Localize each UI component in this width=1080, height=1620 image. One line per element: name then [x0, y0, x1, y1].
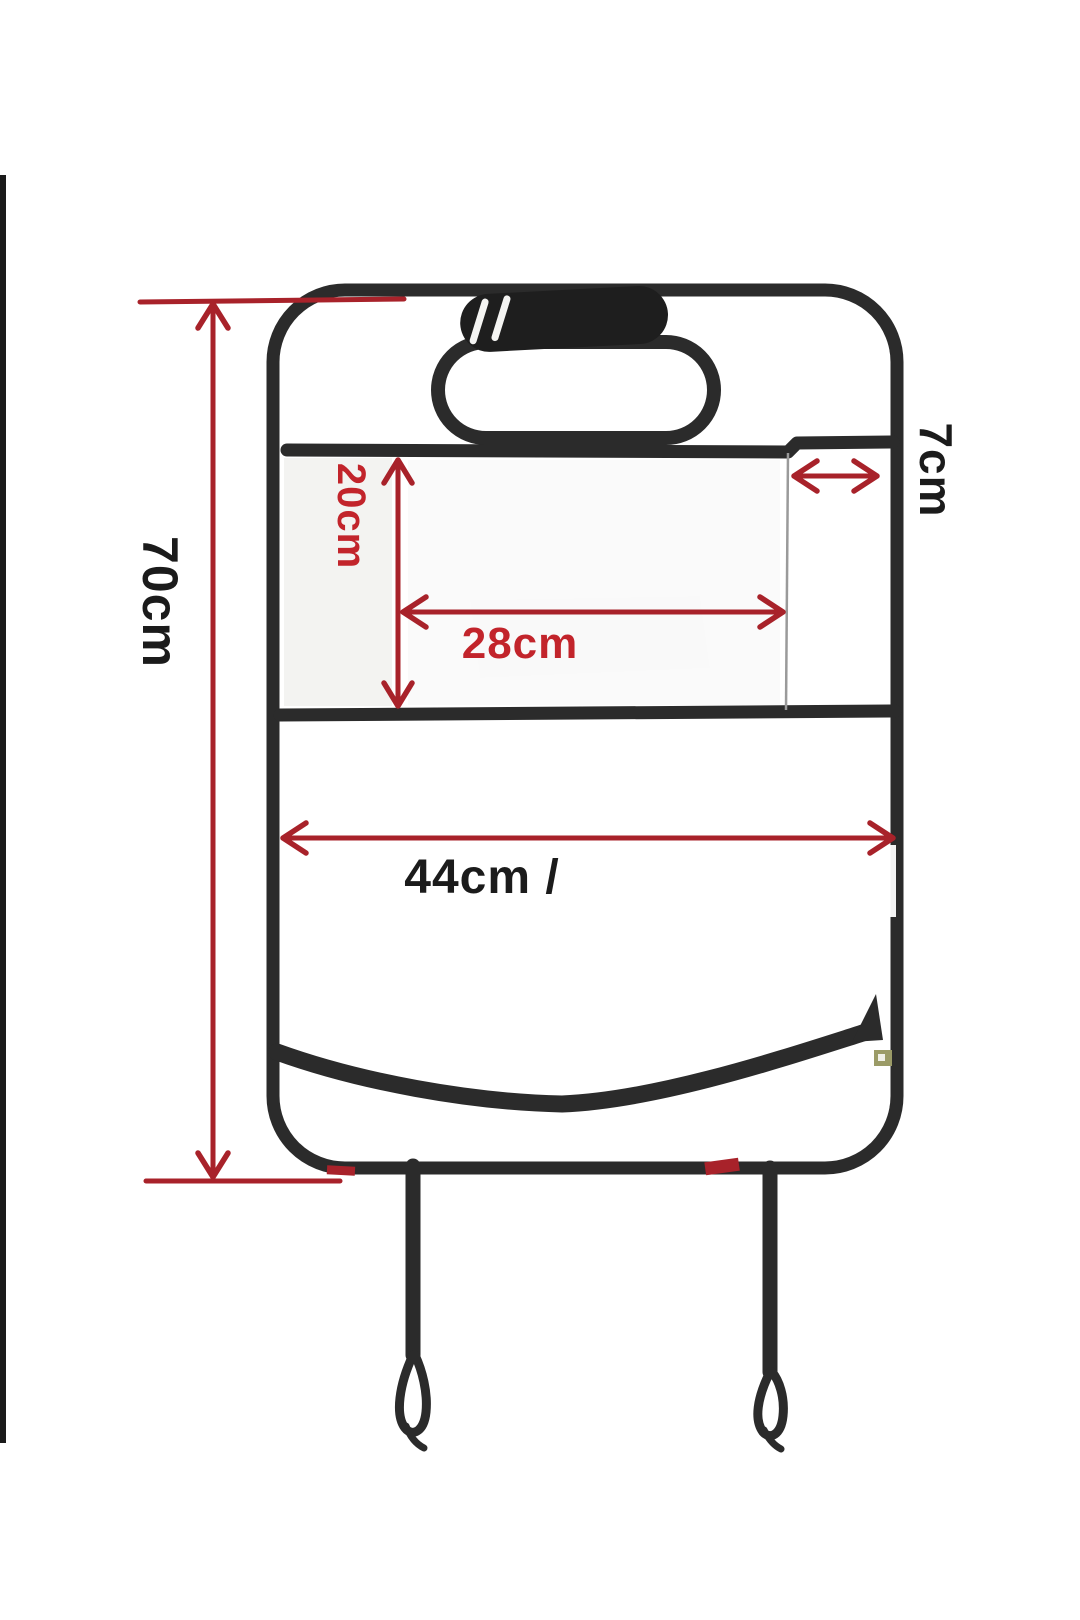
- headrest-strap: [459, 285, 670, 354]
- red-hem-mark-left: [327, 1165, 355, 1175]
- pocket-window: [408, 460, 780, 705]
- side-pocket-dimension-line: [794, 461, 877, 491]
- left-strap-loop: [399, 1355, 426, 1432]
- pocket-height-dimension-label: 20cm: [331, 463, 371, 569]
- width-dimension-label: 44cm /: [404, 854, 559, 902]
- zipper-tab-highlight: [878, 1054, 885, 1061]
- bottom-pocket-trim-tip: [852, 994, 883, 1042]
- pocket-seam-bottom: [280, 711, 895, 715]
- protector-outline: [273, 290, 897, 1168]
- headrest-opening: [438, 342, 714, 438]
- photo-edge-bar: [0, 175, 6, 1443]
- bottom-pocket-trim: [277, 1032, 866, 1104]
- product-photo: 70cm 20cm 28cm 7cm 44cm /: [0, 0, 1080, 1620]
- right-tie-strap: [758, 1168, 784, 1449]
- right-strap-loop: [758, 1372, 784, 1436]
- pocket-divider-seam: [786, 453, 788, 710]
- seat-protector: [273, 285, 897, 1449]
- pocket-width-dimension-label: 28cm: [462, 622, 579, 666]
- side-pocket-dimension-label: 7cm: [913, 422, 959, 517]
- height-dimension-label: 70cm: [135, 536, 185, 668]
- diagram-canvas: [0, 0, 1080, 1620]
- left-tie-strap: [399, 1166, 426, 1448]
